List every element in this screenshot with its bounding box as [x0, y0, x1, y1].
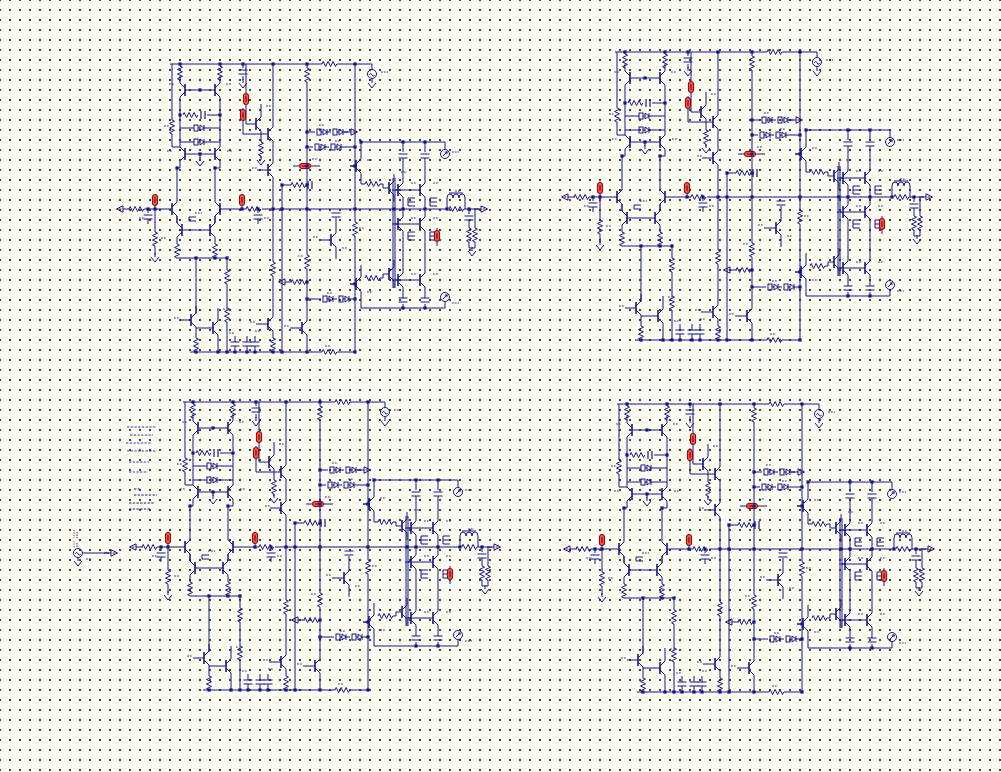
- amplifier-schematic-bottom-left[interactable]: [130, 400, 501, 693]
- annotation-notes[interactable]: [126, 427, 157, 509]
- amplifier-schematic-bottom-right[interactable]: [564, 402, 935, 695]
- schematic-svg: [0, 0, 1001, 772]
- schematic-editor-canvas[interactable]: [0, 0, 1001, 772]
- amplifier-schematic-top-right[interactable]: [562, 50, 933, 343]
- reference-source-circuit[interactable]: [74, 530, 118, 566]
- amplifier-schematic-top-left[interactable]: [117, 62, 488, 355]
